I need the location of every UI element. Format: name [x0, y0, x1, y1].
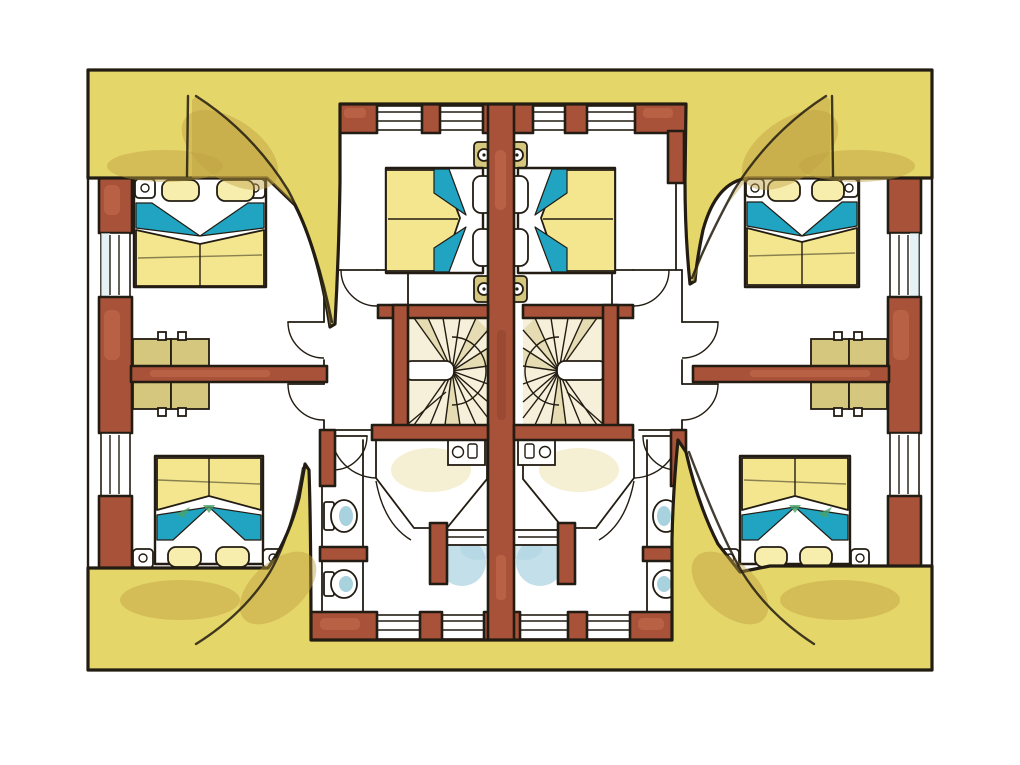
bath-wall-left [372, 425, 488, 440]
bed-bottom-right [721, 456, 869, 567]
bed-top-right [745, 177, 859, 287]
stair-wall-left-side [393, 305, 408, 427]
window [533, 106, 565, 130]
window [440, 106, 483, 130]
brick-pier [422, 103, 440, 133]
shower-stub-left [430, 523, 447, 584]
pillow [216, 547, 249, 567]
pillow [162, 180, 199, 201]
window [377, 615, 420, 639]
window [890, 433, 919, 496]
bed-bottom-left [133, 456, 283, 568]
brick-pier [888, 177, 921, 233]
brick-pier [565, 103, 587, 133]
exterior-wall-left [99, 177, 132, 569]
stair-rail-left [404, 361, 454, 380]
nightstand [133, 549, 153, 568]
pillow [812, 180, 844, 201]
hall-wall-left-lower [320, 430, 335, 486]
pillow [755, 547, 787, 567]
stair-rail-right [557, 361, 607, 380]
pillow [168, 547, 201, 567]
bath-wall-right [514, 425, 633, 440]
wc-stub-left [320, 547, 367, 561]
washbasin-box-left [448, 438, 485, 465]
party-wall [488, 103, 514, 643]
window [101, 433, 130, 496]
shower-stub-right [558, 523, 575, 584]
brick-pier [420, 612, 442, 642]
stair-wall-right-side [603, 305, 618, 427]
window [587, 106, 635, 130]
staircase-right [523, 318, 607, 425]
window [442, 615, 484, 639]
window [377, 106, 422, 130]
window [520, 615, 568, 639]
toilet-left-lower [324, 570, 357, 598]
nightstand [851, 549, 869, 567]
brick-pier [888, 496, 921, 569]
nightstand [135, 179, 155, 198]
pillow [800, 547, 832, 567]
toilet-left-upper [324, 500, 357, 532]
window [587, 615, 630, 639]
floor-plan-drawing [0, 0, 1020, 765]
staircase-left [404, 318, 488, 425]
brick-pier [568, 612, 587, 642]
bed-top-left [134, 177, 266, 287]
brick-pier [99, 496, 132, 569]
hall-wall-right-upper [668, 131, 684, 183]
washbasin-box-right [518, 438, 555, 465]
floor-plan-scan: Hand-painted watercolour floor plan of a… [0, 0, 1020, 765]
exterior-wall-right [888, 177, 921, 569]
